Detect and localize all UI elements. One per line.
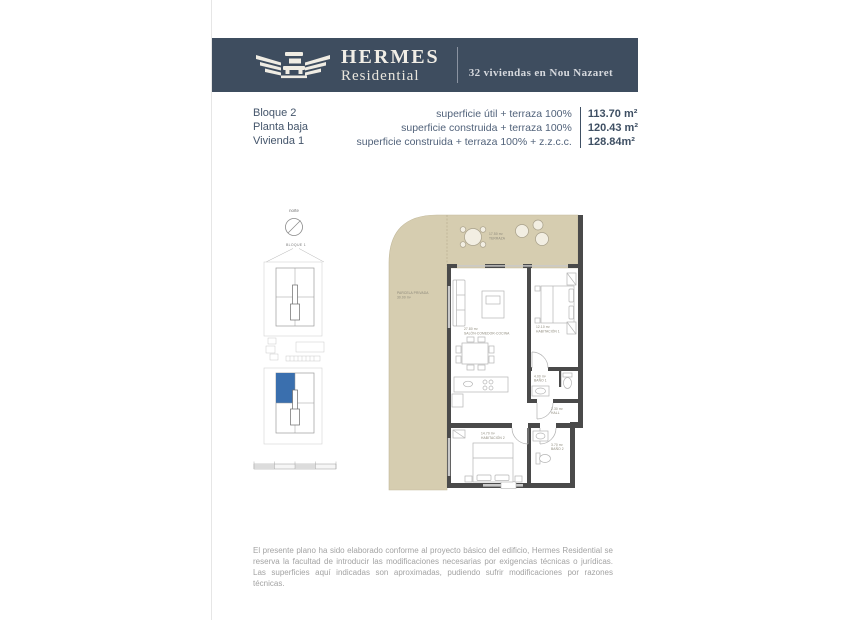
site-location-plan: norte BLOQUE 1	[250, 196, 360, 476]
brand-name: HERMES	[341, 47, 440, 67]
hab1-area: 12.10 m²	[536, 325, 551, 329]
terrace-planter	[516, 225, 529, 238]
surface-values: 113.70 m² 120.43 m² 128.84m²	[588, 106, 638, 149]
site-courtyard	[266, 338, 324, 361]
surface-divider	[580, 107, 581, 148]
hermes-wings-logo-icon	[254, 47, 332, 83]
salon-label: SALÓN-COMEDOR-COCINA	[464, 331, 510, 336]
parcela-area: 30.00 m²	[397, 296, 412, 300]
terraza-label: TERRAZA	[489, 237, 506, 241]
header-divider	[457, 47, 458, 83]
hab2-area: 14.70 m²	[481, 432, 496, 436]
block-label: Bloque 2	[253, 106, 308, 120]
surface-row-value: 113.70 m²	[588, 107, 638, 121]
surface-row-label: superficie construida + terraza 100% + z…	[356, 135, 571, 149]
surface-labels: superficie útil + terraza 100% superfici…	[356, 106, 571, 149]
terrace-planter	[536, 233, 549, 246]
block-leader-lines	[266, 249, 324, 263]
unit-info-block: Bloque 2 Planta baja Vivienda 1 superfic…	[212, 106, 638, 149]
bano2-label: BAÑO 2	[551, 446, 564, 451]
fridge	[452, 394, 463, 407]
disclaimer-text: El presente plano ha sido elaborado conf…	[253, 545, 613, 589]
entry-threshold	[501, 482, 516, 489]
page-left-edge	[211, 0, 212, 620]
project-tagline: 32 viviendas en Nou Nazaret	[469, 67, 613, 79]
site-block-1	[264, 262, 322, 336]
surface-row-value: 120.43 m²	[588, 121, 638, 135]
terrace-table	[465, 229, 482, 246]
block-tag: BLOQUE 1	[286, 243, 306, 247]
brand-subtitle: Residential	[341, 69, 440, 84]
parcela-label: PARCELA PRIVADA	[397, 291, 429, 295]
terraza-area: 17.50 m²	[489, 232, 504, 236]
header-bar: HERMES Residential 32 viviendas en Nou N…	[212, 38, 638, 92]
surface-table: superficie útil + terraza 100% superfici…	[356, 106, 638, 149]
dining-table	[462, 343, 488, 364]
scale-bar	[254, 462, 336, 470]
stove-burner	[483, 380, 487, 384]
hab1-label: HABITACIÓN 1	[536, 329, 560, 334]
dwelling-label: Vivienda 1	[253, 134, 308, 148]
north-compass-icon	[286, 219, 303, 236]
toilet-1	[563, 373, 572, 377]
door-swings	[512, 352, 556, 444]
surface-row-label: superficie construida + terraza 100%	[356, 121, 571, 135]
hall-label: HALL	[551, 411, 560, 415]
sofa	[453, 280, 465, 326]
apartment-floor-plan: PARCELA PRIVADA 30.00 m² 17.50 m² TERRAZ…	[385, 190, 600, 500]
surface-row-value: 128.84m²	[588, 135, 638, 149]
unit-identity: Bloque 2 Planta baja Vivienda 1	[253, 106, 308, 149]
site-block-2	[264, 368, 322, 444]
kitchen-counter	[454, 377, 508, 392]
salon-area: 27.80 m²	[464, 327, 479, 331]
bano1-label: BAÑO 1	[534, 378, 547, 383]
north-label: norte	[289, 208, 299, 213]
hab2-label: HABITACIÓN 2	[481, 435, 505, 440]
terrace-planter	[533, 220, 543, 230]
living-rug	[482, 291, 504, 318]
surface-row-label: superficie útil + terraza 100%	[356, 107, 571, 121]
brand-block: HERMES Residential	[341, 47, 440, 84]
floor-label: Planta baja	[253, 120, 308, 134]
highlighted-unit	[276, 373, 295, 403]
